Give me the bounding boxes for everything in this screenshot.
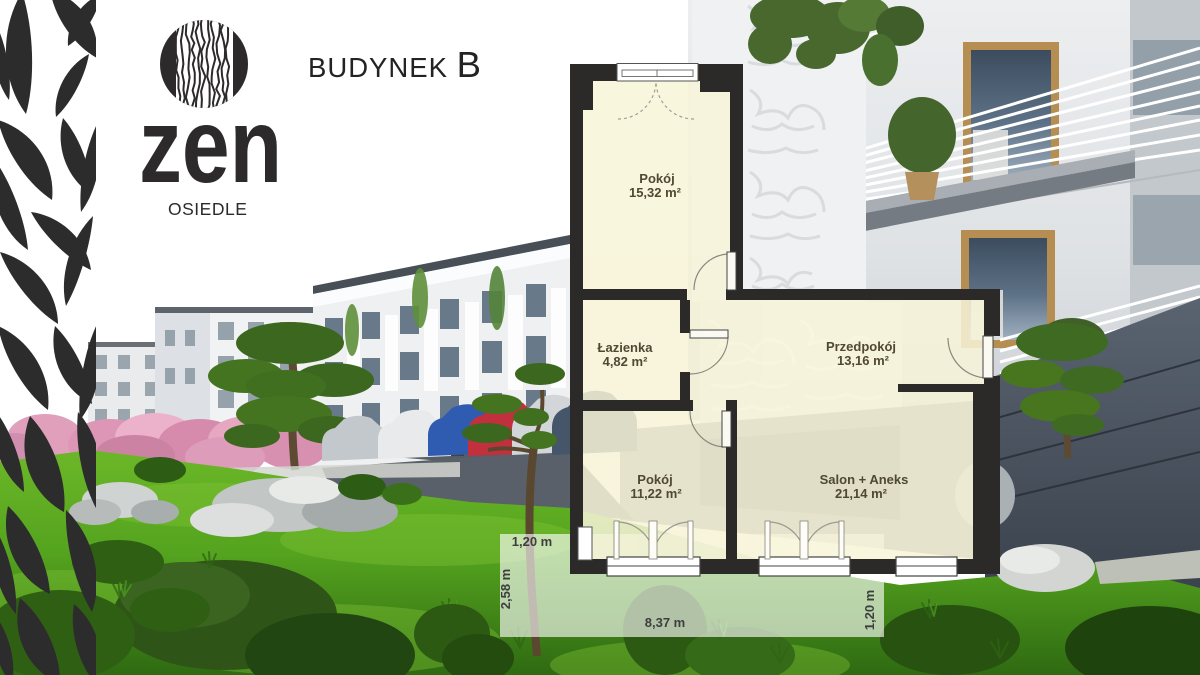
svg-text:15,32 m²: 15,32 m² bbox=[629, 185, 682, 200]
svg-text:21,14 m²: 21,14 m² bbox=[835, 486, 888, 501]
svg-text:11,22 m²: 11,22 m² bbox=[630, 486, 682, 501]
svg-text:Łazienka: Łazienka bbox=[598, 340, 654, 355]
svg-text:2,58 m: 2,58 m bbox=[498, 569, 513, 609]
svg-text:Pokój: Pokój bbox=[639, 171, 674, 186]
svg-text:OSIEDLE: OSIEDLE bbox=[168, 199, 247, 219]
svg-text:Pokój: Pokój bbox=[637, 472, 672, 487]
svg-text:4,82 m²: 4,82 m² bbox=[603, 354, 648, 369]
svg-text:Salon + Aneks: Salon + Aneks bbox=[820, 472, 909, 487]
svg-text:8,37 m: 8,37 m bbox=[645, 615, 685, 630]
svg-text:1,20 m: 1,20 m bbox=[512, 534, 552, 549]
svg-text:zen: zen bbox=[139, 87, 282, 205]
svg-text:13,16 m²: 13,16 m² bbox=[837, 353, 890, 368]
svg-text:Przedpokój: Przedpokój bbox=[826, 339, 896, 354]
svg-text:1,20 m: 1,20 m bbox=[862, 590, 877, 630]
